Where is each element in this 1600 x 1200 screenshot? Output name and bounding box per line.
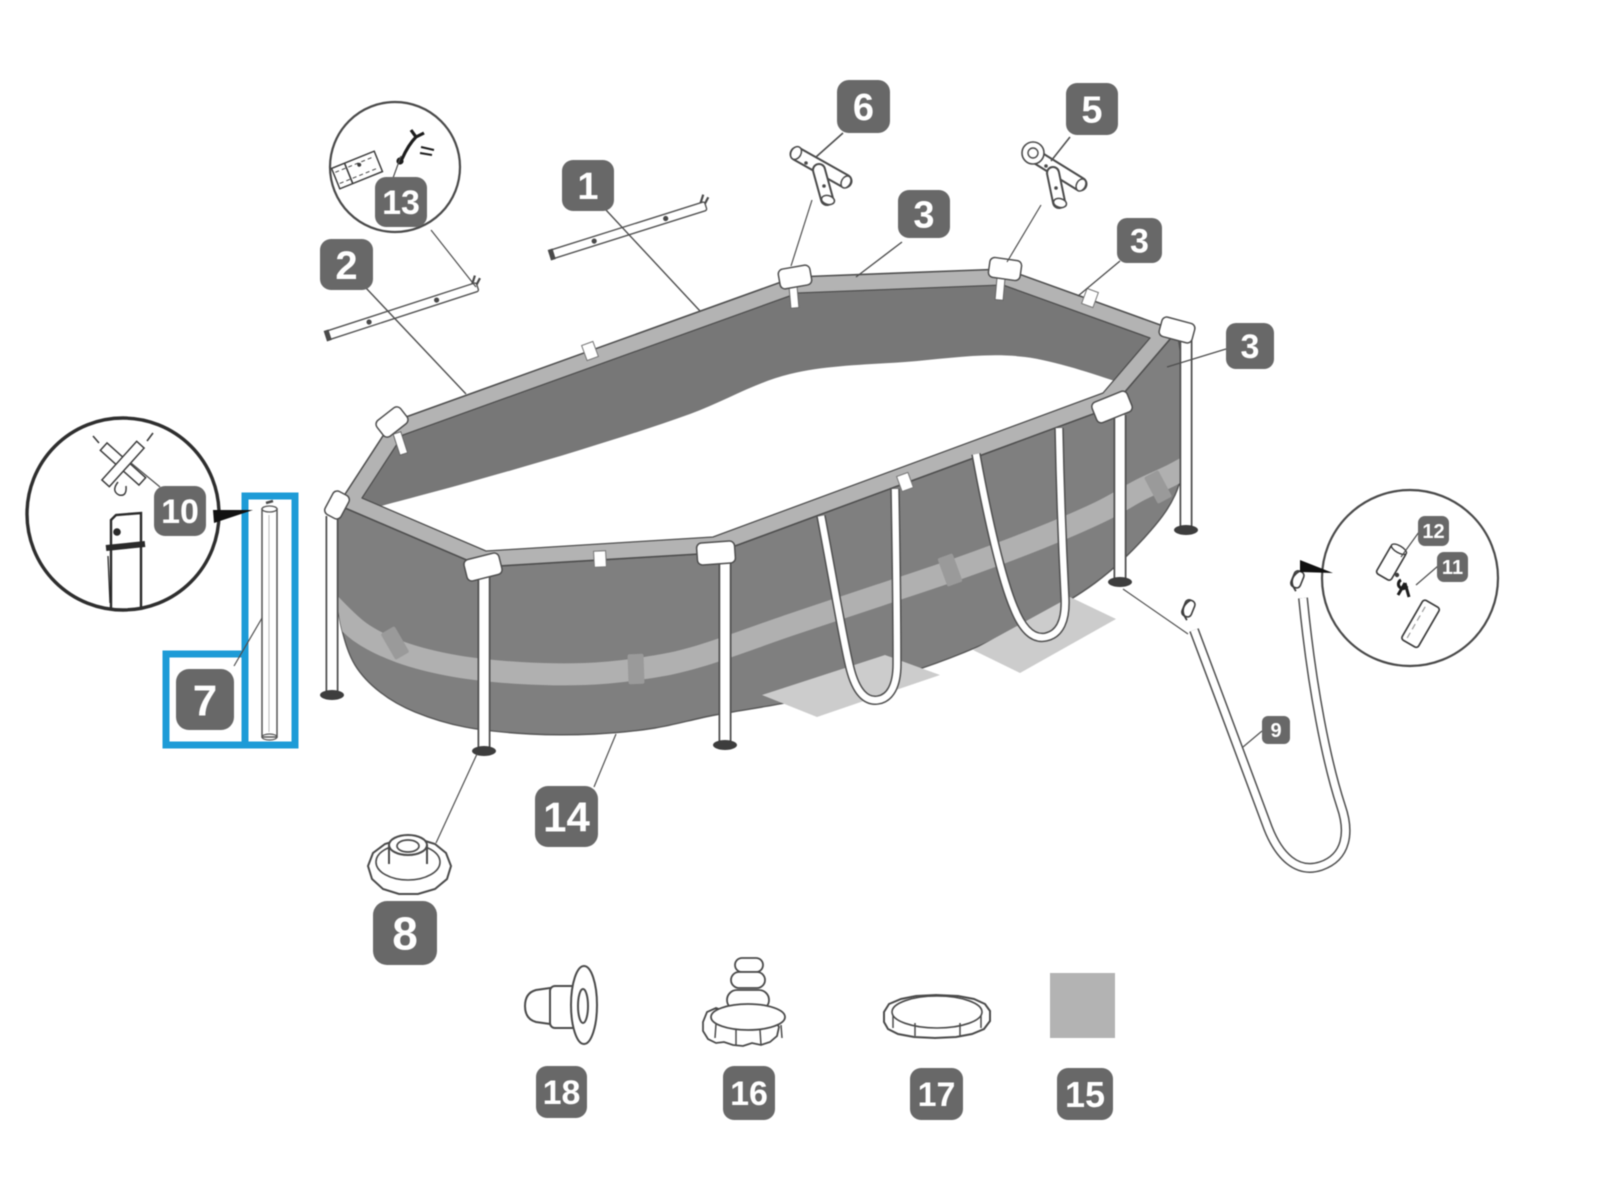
svg-text:13: 13 bbox=[382, 184, 420, 222]
svg-text:7: 7 bbox=[193, 676, 217, 725]
svg-text:14: 14 bbox=[543, 794, 590, 841]
svg-text:2: 2 bbox=[335, 244, 357, 288]
svg-text:8: 8 bbox=[392, 908, 418, 960]
svg-text:12: 12 bbox=[1422, 521, 1444, 543]
svg-text:17: 17 bbox=[918, 1076, 956, 1114]
svg-text:16: 16 bbox=[730, 1075, 768, 1113]
svg-text:18: 18 bbox=[543, 1074, 581, 1112]
svg-text:11: 11 bbox=[1442, 557, 1463, 579]
svg-text:9: 9 bbox=[1270, 720, 1281, 742]
svg-text:3: 3 bbox=[1130, 223, 1149, 261]
svg-text:1: 1 bbox=[577, 166, 598, 208]
svg-text:3: 3 bbox=[1241, 328, 1260, 366]
svg-text:10: 10 bbox=[161, 493, 199, 531]
svg-text:6: 6 bbox=[853, 87, 874, 129]
svg-text:15: 15 bbox=[1065, 1074, 1105, 1115]
svg-text:3: 3 bbox=[913, 195, 934, 237]
svg-text:5: 5 bbox=[1081, 90, 1102, 132]
